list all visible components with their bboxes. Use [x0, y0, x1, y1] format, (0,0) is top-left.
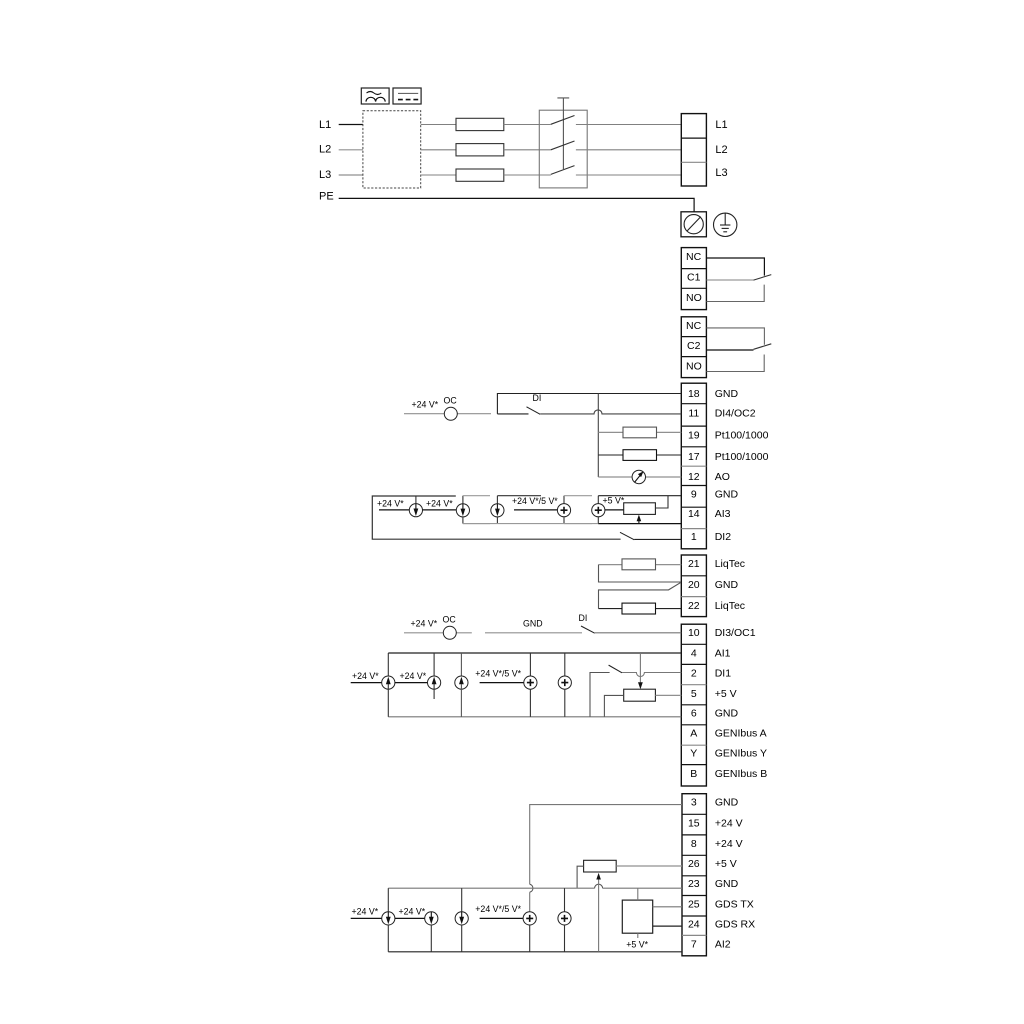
svg-text:+24 V*: +24 V*: [352, 671, 379, 681]
svg-text:DI4/OC2: DI4/OC2: [715, 408, 756, 420]
svg-text:LiqTec: LiqTec: [715, 600, 745, 612]
svg-text:+24 V*: +24 V*: [352, 906, 379, 916]
svg-text:GND: GND: [715, 878, 739, 890]
svg-text:Y: Y: [690, 748, 697, 760]
svg-text:20: 20: [688, 579, 700, 591]
svg-text:7: 7: [691, 939, 697, 951]
svg-text:GDS RX: GDS RX: [715, 919, 755, 931]
svg-text:6: 6: [691, 707, 697, 719]
svg-text:+5 V: +5 V: [715, 688, 737, 700]
svg-text:+24 V*: +24 V*: [411, 618, 438, 628]
svg-text:19: 19: [688, 430, 700, 442]
svg-text:23: 23: [688, 878, 700, 890]
svg-text:2: 2: [691, 668, 697, 680]
svg-text:+24 V*/5 V*: +24 V*/5 V*: [512, 496, 558, 506]
svg-text:+24 V: +24 V: [715, 818, 743, 830]
svg-text:AI2: AI2: [715, 939, 731, 951]
svg-text:GND: GND: [715, 707, 739, 719]
svg-text:DI3/OC1: DI3/OC1: [715, 627, 756, 639]
svg-text:+5 V*: +5 V*: [603, 496, 625, 506]
svg-text:+24 V*: +24 V*: [399, 906, 426, 916]
svg-text:22: 22: [688, 600, 700, 612]
svg-text:DI: DI: [579, 613, 588, 623]
svg-text:26: 26: [688, 858, 700, 870]
svg-text:3: 3: [691, 797, 697, 809]
svg-text:14: 14: [688, 508, 700, 520]
svg-text:GND: GND: [715, 797, 739, 809]
svg-text:AI3: AI3: [715, 508, 731, 520]
svg-text:LiqTec: LiqTec: [715, 558, 745, 570]
svg-text:NO: NO: [686, 360, 702, 372]
svg-text:17: 17: [688, 451, 700, 463]
svg-text:GND: GND: [715, 489, 739, 501]
svg-text:NO: NO: [686, 292, 702, 304]
svg-text:+24 V*/5 V*: +24 V*/5 V*: [475, 904, 521, 914]
svg-text:L2: L2: [715, 144, 727, 156]
svg-text:9: 9: [691, 489, 697, 501]
svg-text:10: 10: [688, 627, 700, 639]
svg-text:Pt100/1000: Pt100/1000: [715, 451, 769, 463]
svg-text:L3: L3: [319, 169, 331, 181]
svg-text:L2: L2: [319, 143, 331, 155]
svg-text:GND: GND: [523, 618, 543, 628]
svg-text:L3: L3: [715, 167, 727, 179]
svg-text:B: B: [690, 768, 697, 780]
svg-text:AI1: AI1: [715, 647, 731, 659]
svg-text:PE: PE: [319, 191, 334, 203]
svg-text:8: 8: [691, 838, 697, 850]
svg-text:L1: L1: [319, 119, 331, 131]
svg-text:GND: GND: [715, 579, 739, 591]
svg-text:+24 V: +24 V: [715, 838, 743, 850]
svg-text:GND: GND: [715, 388, 739, 400]
svg-text:4: 4: [691, 647, 697, 659]
svg-text:Pt100/1000: Pt100/1000: [715, 430, 769, 442]
svg-text:GENIbus A: GENIbus A: [715, 727, 767, 739]
svg-text:A: A: [690, 727, 697, 739]
svg-text:GENIbus B: GENIbus B: [715, 768, 768, 780]
svg-text:11: 11: [688, 408, 699, 420]
svg-text:C2: C2: [687, 340, 701, 352]
svg-text:L1: L1: [715, 119, 727, 131]
svg-text:GENIbus Y: GENIbus Y: [715, 748, 767, 760]
svg-text:+5 V: +5 V: [715, 858, 737, 870]
svg-text:+24 V*: +24 V*: [377, 499, 404, 509]
svg-text:DI1: DI1: [715, 668, 732, 680]
svg-text:OC: OC: [444, 396, 458, 406]
svg-text:+24 V*: +24 V*: [426, 499, 453, 509]
svg-text:+24 V*/5 V*: +24 V*/5 V*: [475, 668, 521, 678]
svg-text:21: 21: [688, 558, 700, 570]
svg-text:+5 V*: +5 V*: [626, 940, 648, 950]
svg-text:18: 18: [688, 388, 700, 400]
svg-text:NC: NC: [686, 320, 702, 332]
svg-text:DI2: DI2: [715, 531, 732, 543]
svg-text:DI: DI: [533, 393, 542, 403]
svg-text:GDS TX: GDS TX: [715, 899, 754, 911]
svg-text:AO: AO: [715, 471, 730, 483]
svg-text:NC: NC: [686, 251, 702, 263]
svg-text:12: 12: [688, 471, 700, 483]
svg-text:1: 1: [691, 531, 697, 543]
svg-text:15: 15: [688, 818, 700, 830]
svg-text:24: 24: [688, 919, 700, 931]
svg-text:OC: OC: [443, 615, 457, 625]
svg-text:+24 V*: +24 V*: [400, 671, 427, 681]
svg-text:25: 25: [688, 899, 700, 911]
svg-text:+24 V*: +24 V*: [412, 399, 439, 409]
svg-text:C1: C1: [687, 272, 701, 284]
svg-text:5: 5: [691, 688, 697, 700]
